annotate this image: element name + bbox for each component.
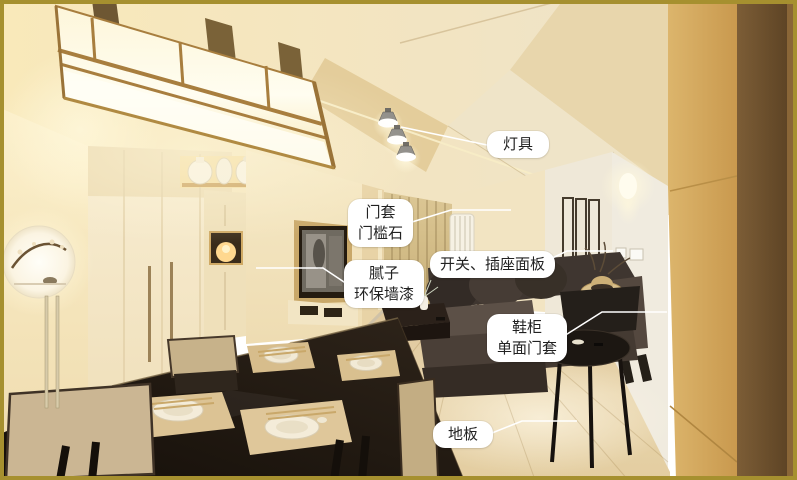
shoe-cabinet	[668, 0, 797, 480]
callout-door-line2: 门槛石	[358, 223, 403, 244]
callout-switch-text: 开关、插座面板	[440, 254, 545, 275]
cabinet-handle	[148, 266, 151, 362]
callout-shoe-line1: 鞋柜	[497, 317, 557, 338]
callout-door-casing: 门套 门槛石	[348, 199, 413, 247]
callout-putty-line2: 环保墙漆	[354, 284, 414, 305]
place-setting	[337, 350, 400, 381]
callout-floor-text: 地板	[448, 424, 478, 445]
callout-switch-socket: 开关、插座面板	[430, 251, 555, 278]
callout-putty-paint: 腻子 环保墙漆	[344, 260, 424, 308]
place-setting	[247, 342, 315, 373]
callout-putty-line1: 腻子	[354, 263, 414, 284]
callout-shoe-cabinet: 鞋柜 单面门套	[487, 314, 567, 362]
callout-door-line1: 门套	[358, 202, 403, 223]
remote-control	[436, 317, 445, 321]
callout-lamp: 灯具	[487, 131, 549, 158]
callout-floor: 地板	[433, 421, 493, 448]
annotated-room-photo: 灯具 门套 门槛石 开关、插座面板 腻子 环保墙漆 鞋柜 单面门套 地板	[0, 0, 797, 480]
callout-shoe-line2: 单面门套	[497, 338, 557, 359]
callout-lamp-text: 灯具	[503, 134, 533, 155]
